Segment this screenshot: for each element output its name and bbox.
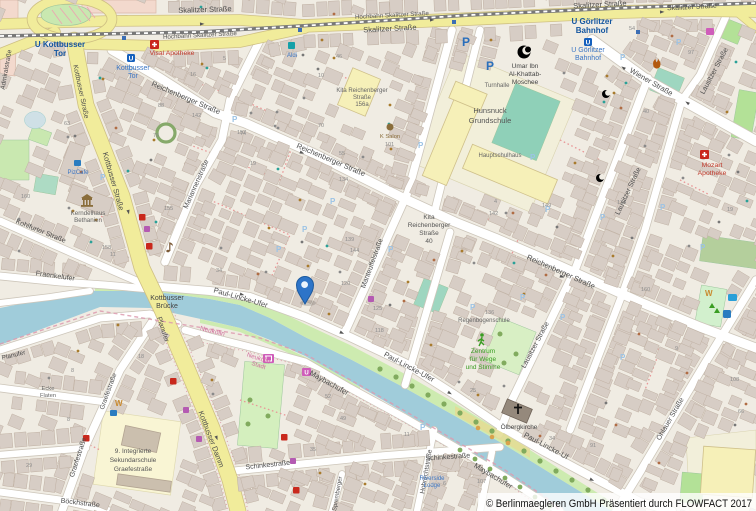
svg-text:134: 134 <box>339 177 348 183</box>
svg-text:156a: 156a <box>355 102 369 108</box>
svg-text:101: 101 <box>385 142 394 148</box>
svg-text:W: W <box>115 399 123 408</box>
svg-text:142: 142 <box>192 113 201 119</box>
svg-text:63: 63 <box>64 121 70 127</box>
svg-text:55: 55 <box>339 151 345 157</box>
svg-text:Zentrum: Zentrum <box>471 348 495 355</box>
svg-text:Sekundarschule: Sekundarschule <box>110 457 157 464</box>
svg-text:P: P <box>232 115 238 124</box>
svg-text:Kottbusser: Kottbusser <box>116 65 150 72</box>
svg-text:9. Integrierte: 9. Integrierte <box>115 448 152 455</box>
svg-text:70: 70 <box>318 123 324 129</box>
svg-text:Tor: Tor <box>54 49 66 58</box>
svg-text:29: 29 <box>26 463 32 469</box>
svg-text:P: P <box>388 245 394 254</box>
svg-text:25: 25 <box>470 388 476 394</box>
svg-text:P: P <box>302 225 308 234</box>
svg-text:136: 136 <box>485 310 494 316</box>
svg-text:10: 10 <box>318 73 324 79</box>
svg-text:PizCafe: PizCafe <box>67 170 89 176</box>
svg-text:Riverside: Riverside <box>419 476 445 482</box>
svg-text:© Berlinmaegleren GmbH Präsent: © Berlinmaegleren GmbH Präsentiert durch… <box>486 498 752 510</box>
svg-text:Reichenberger: Reichenberger <box>408 222 451 229</box>
svg-text:Straße: Straße <box>419 230 439 237</box>
svg-text:157: 157 <box>237 130 246 136</box>
svg-text:Straße: Straße <box>353 95 372 101</box>
svg-text:P: P <box>462 35 470 49</box>
svg-text:18: 18 <box>138 354 144 360</box>
svg-text:U: U <box>586 40 591 47</box>
svg-text:Bahnhof: Bahnhof <box>576 26 609 35</box>
svg-text:P: P <box>520 293 526 302</box>
svg-text:Skalitzer Straße: Skalitzer Straße <box>178 4 232 15</box>
svg-text:P: P <box>560 313 566 322</box>
svg-text:142: 142 <box>489 211 498 217</box>
svg-text:144: 144 <box>350 248 359 254</box>
svg-text:P: P <box>330 197 336 206</box>
svg-text:Ölbergkirche: Ölbergkirche <box>501 423 538 431</box>
svg-text:Al-Khattab-: Al-Khattab- <box>509 71 542 78</box>
svg-text:Ecke: Ecke <box>42 386 55 392</box>
svg-text:P: P <box>676 38 682 47</box>
svg-text:Kita: Kita <box>423 214 435 221</box>
svg-text:4: 4 <box>494 199 497 205</box>
svg-text:Kottbusser: Kottbusser <box>150 295 184 302</box>
svg-text:Grundschule: Grundschule <box>469 116 512 125</box>
svg-text:11: 11 <box>404 432 410 438</box>
svg-text:40: 40 <box>425 238 433 245</box>
svg-text:U: U <box>129 56 134 63</box>
svg-text:Flaten: Flaten <box>40 393 56 399</box>
svg-text:49: 49 <box>340 416 346 422</box>
svg-text:Tor: Tor <box>128 73 138 80</box>
svg-text:P: P <box>276 245 282 254</box>
svg-text:Kita Reichenberger: Kita Reichenberger <box>336 88 387 94</box>
svg-text:P: P <box>530 153 536 162</box>
svg-text:Regenbogenschule: Regenbogenschule <box>458 318 510 324</box>
svg-text:P: P <box>660 203 666 212</box>
svg-text:P: P <box>418 141 424 150</box>
svg-text:108: 108 <box>730 377 739 383</box>
svg-text:160: 160 <box>21 194 30 200</box>
svg-text:40: 40 <box>643 109 649 115</box>
svg-text:91: 91 <box>590 443 596 449</box>
svg-text:149: 149 <box>542 203 551 209</box>
svg-text:Aldi: Aldi <box>287 53 297 59</box>
svg-text:19: 19 <box>727 207 733 213</box>
svg-text:158: 158 <box>102 245 111 251</box>
svg-text:Kerndelhaus: Kerndelhaus <box>71 210 106 217</box>
svg-text:P: P <box>486 59 494 73</box>
svg-text:34: 34 <box>549 436 555 442</box>
svg-text:35: 35 <box>310 447 316 453</box>
svg-text:Moschee: Moschee <box>512 79 539 86</box>
svg-text:Umar Ibn: Umar Ibn <box>512 63 539 70</box>
svg-text:155: 155 <box>164 206 173 212</box>
svg-text:Mozart: Mozart <box>702 162 723 169</box>
svg-text:P: P <box>470 303 476 312</box>
svg-text:Turnhalle: Turnhalle <box>485 83 510 89</box>
svg-text:5: 5 <box>223 56 226 62</box>
svg-text:76: 76 <box>153 133 159 139</box>
svg-text:Graefestraße: Graefestraße <box>114 466 153 473</box>
svg-text:19: 19 <box>250 161 256 167</box>
svg-text:107: 107 <box>477 479 486 485</box>
svg-text:Hunsnuck: Hunsnuck <box>473 106 507 115</box>
svg-text:Bethanien: Bethanien <box>74 217 102 224</box>
svg-text:34: 34 <box>216 268 222 274</box>
svg-text:8: 8 <box>71 368 74 374</box>
svg-text:P: P <box>620 353 626 362</box>
svg-text:Lodge: Lodge <box>424 483 441 489</box>
svg-text:Hauptschulhaus: Hauptschulhaus <box>478 153 521 159</box>
svg-text:97: 97 <box>688 50 694 56</box>
svg-text:P: P <box>600 213 606 222</box>
svg-text:K Salon: K Salon <box>380 134 400 140</box>
svg-text:16: 16 <box>190 72 196 78</box>
svg-text:46: 46 <box>336 54 342 60</box>
svg-text:Visal Apotheke: Visal Apotheke <box>150 50 195 57</box>
svg-text:W: W <box>705 289 713 298</box>
svg-text:Bahnhof: Bahnhof <box>575 55 601 62</box>
svg-text:118: 118 <box>375 328 384 334</box>
svg-text:125: 125 <box>373 306 382 312</box>
svg-text:für Wege: für Wege <box>470 356 497 363</box>
svg-text:P: P <box>700 243 706 252</box>
svg-text:88: 88 <box>158 103 164 109</box>
svg-text:und Stimme: und Stimme <box>466 364 501 371</box>
svg-text:Brücke: Brücke <box>156 303 178 310</box>
svg-text:9: 9 <box>675 346 678 352</box>
svg-text:160: 160 <box>641 287 650 293</box>
svg-text:139: 139 <box>345 237 354 243</box>
svg-text:11: 11 <box>110 252 116 258</box>
svg-text:66: 66 <box>738 409 744 415</box>
svg-text:P: P <box>420 423 426 432</box>
svg-text:U Görlitzer: U Görlitzer <box>571 47 605 54</box>
svg-text:120: 120 <box>341 281 350 287</box>
svg-text:P: P <box>620 53 626 62</box>
svg-text:Apotheke: Apotheke <box>698 170 727 177</box>
svg-text:U Görlitzer: U Görlitzer <box>572 17 613 26</box>
svg-text:52: 52 <box>325 394 331 400</box>
svg-text:54: 54 <box>629 26 635 32</box>
svg-text:U Kottbusser: U Kottbusser <box>35 40 85 49</box>
svg-text:8: 8 <box>67 417 70 423</box>
svg-text:P: P <box>100 173 106 182</box>
